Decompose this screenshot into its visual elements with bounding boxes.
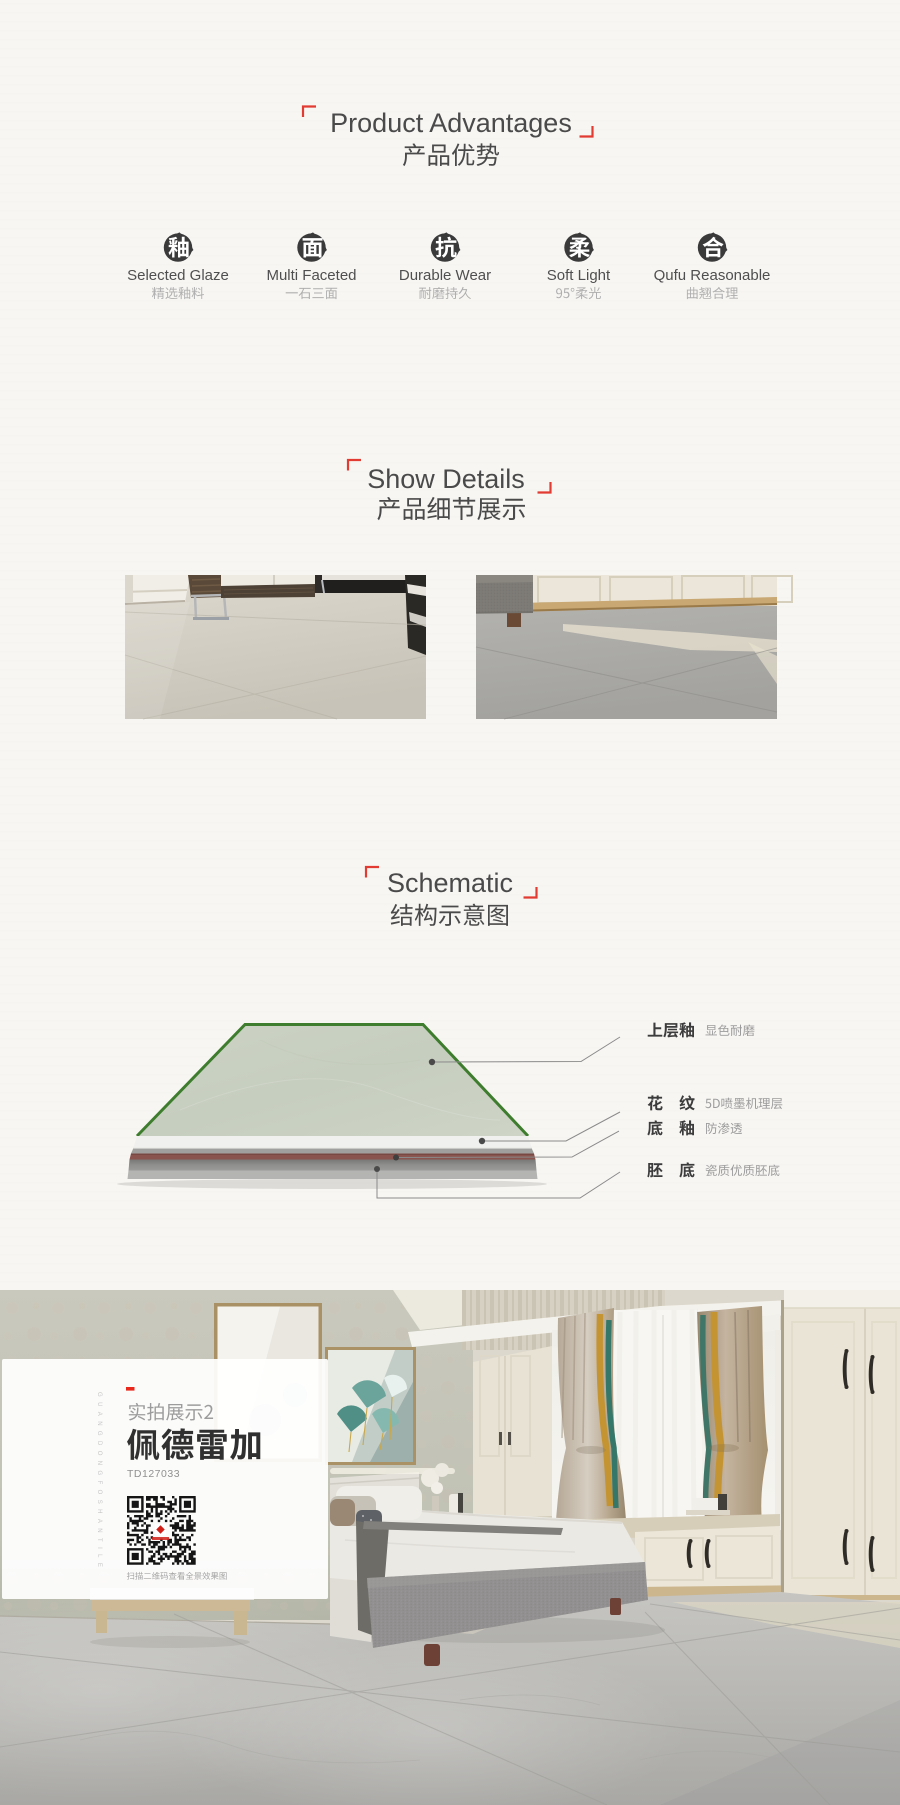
svg-text:TD127033: TD127033	[127, 1468, 180, 1480]
svg-text:Product Advantages: Product Advantages	[330, 108, 572, 138]
svg-text:Schematic: Schematic	[387, 868, 513, 898]
svg-text:Selected Glaze: Selected Glaze	[127, 267, 229, 284]
svg-text:Show Details: Show Details	[367, 464, 525, 494]
svg-text:Multi Faceted: Multi Faceted	[266, 267, 356, 284]
svg-text:GUANGDONGFOSHANTILE: GUANGDONGFOSHANTILE	[96, 1392, 102, 1572]
svg-text:Durable Wear: Durable Wear	[399, 267, 491, 284]
svg-text:Soft Light: Soft Light	[547, 267, 611, 284]
svg-text:Qufu Reasonable: Qufu Reasonable	[654, 267, 771, 284]
